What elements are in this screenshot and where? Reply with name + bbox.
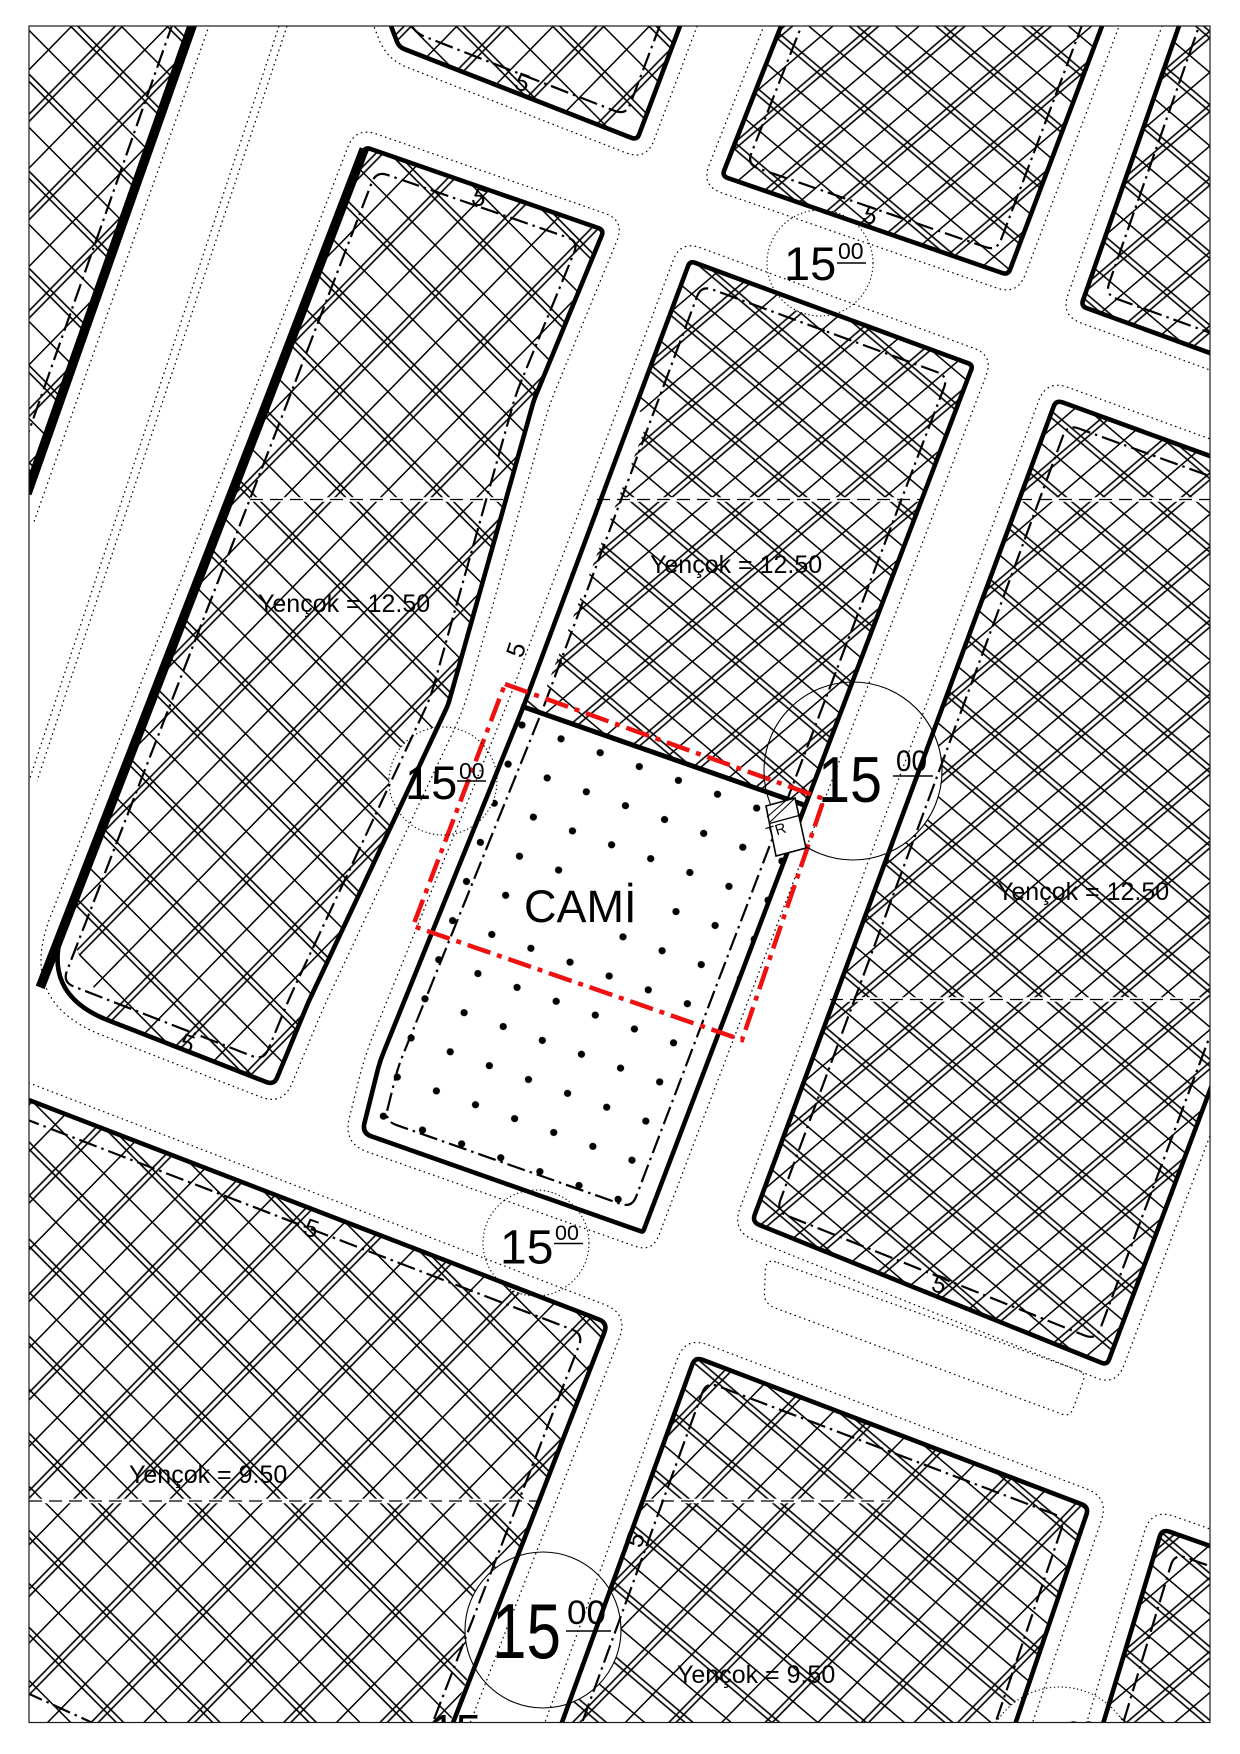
svg-text:Yençok = 9.50: Yençok = 9.50	[677, 1661, 835, 1689]
svg-text:Yençok = 12.50: Yençok = 12.50	[650, 551, 822, 579]
svg-text:00: 00	[838, 238, 864, 264]
svg-text:CAMİ: CAMİ	[524, 881, 637, 932]
svg-text:00: 00	[459, 758, 485, 784]
svg-text:00: 00	[555, 1221, 579, 1245]
svg-text:Yençok = 12.50: Yençok = 12.50	[997, 878, 1169, 906]
svg-text:15: 15	[405, 756, 457, 809]
svg-text:Yençok = 9.50: Yençok = 9.50	[129, 1461, 287, 1489]
svg-text:00: 00	[896, 745, 927, 778]
svg-text:15: 15	[818, 743, 882, 816]
svg-text:15: 15	[784, 237, 836, 290]
svg-text:00: 00	[567, 1594, 606, 1632]
svg-text:Yençok = 12.50: Yençok = 12.50	[258, 590, 430, 618]
svg-text:15: 15	[492, 1587, 561, 1675]
svg-text:15: 15	[500, 1222, 553, 1275]
